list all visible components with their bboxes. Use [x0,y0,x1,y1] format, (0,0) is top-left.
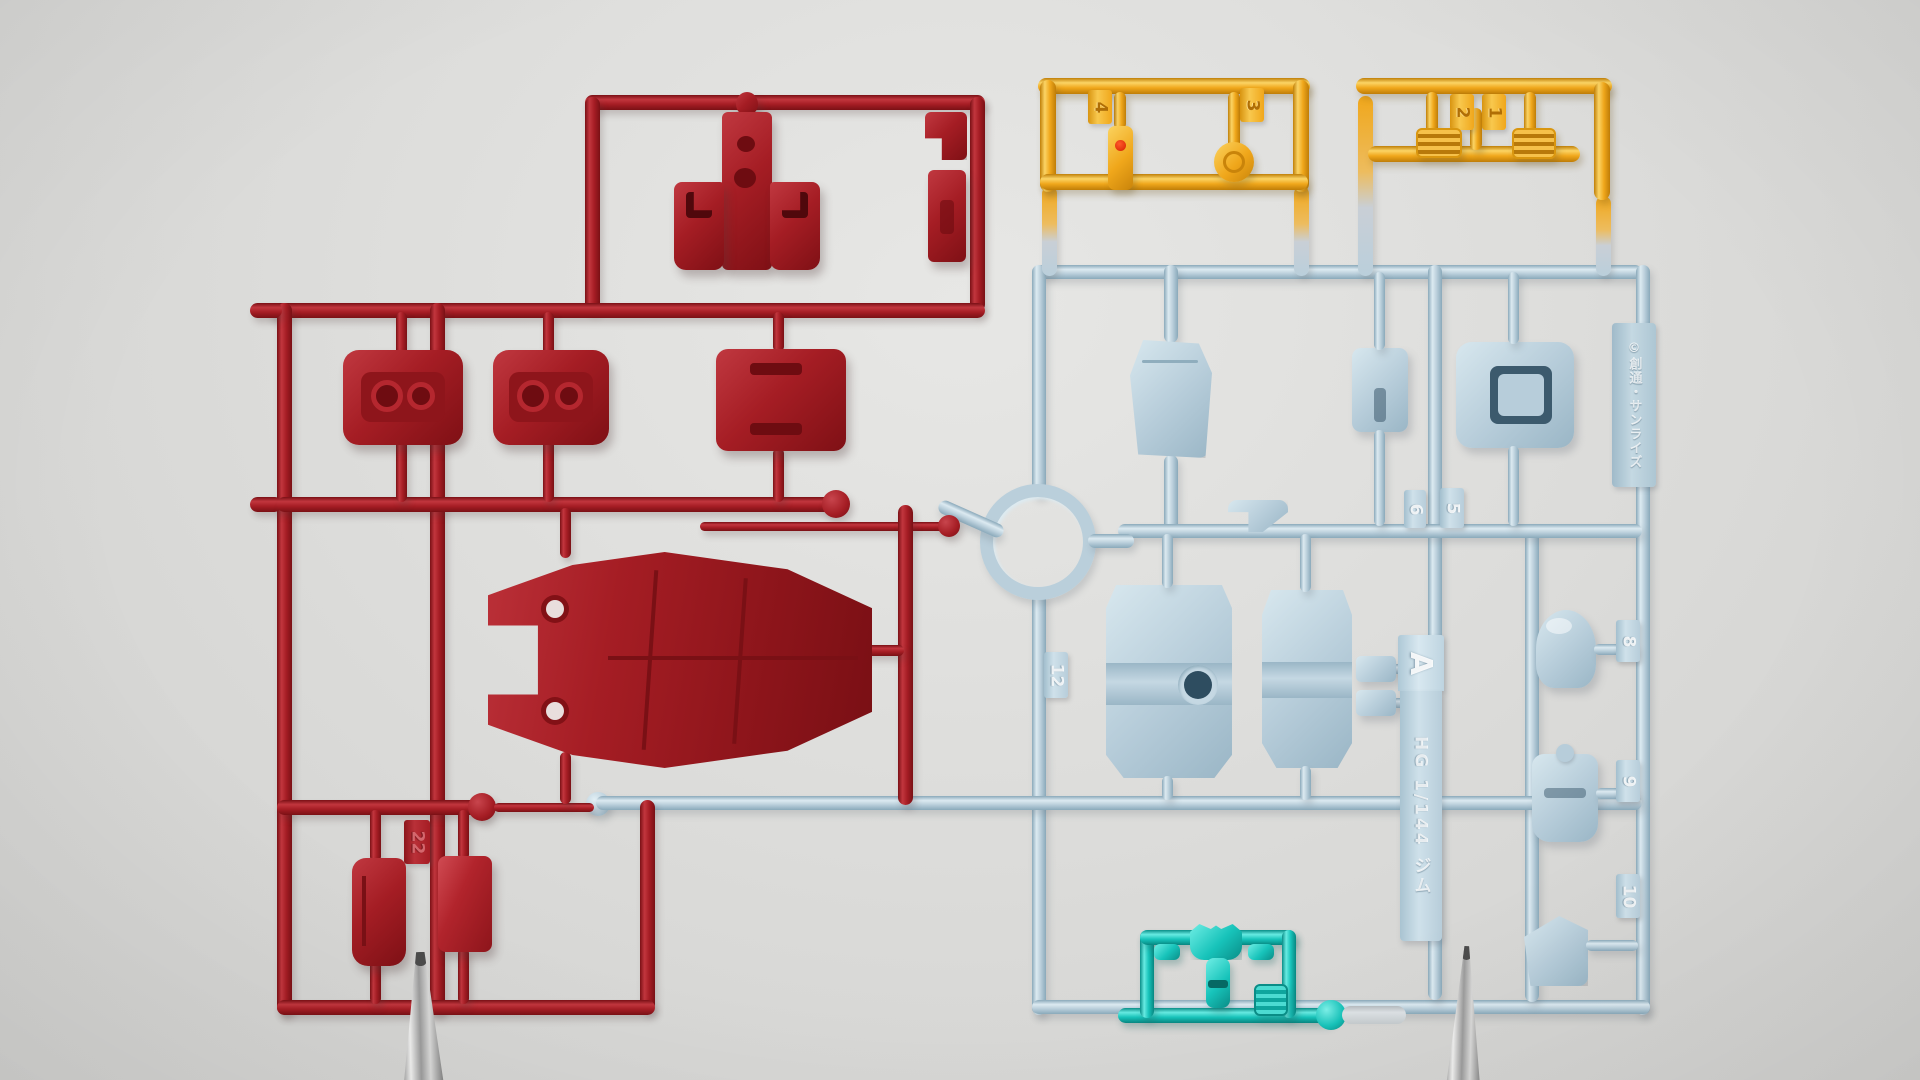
gate-stub [1162,534,1173,588]
gate-stub [1162,776,1173,800]
gate-number: 10 [1619,884,1636,908]
blue-runner-left-upper [1032,265,1046,497]
yellow-chest-vent-part-2 [1512,128,1556,159]
red-runner-bottom-mid [277,800,489,815]
gate-number: 9 [1620,775,1637,787]
red-foot-sole-part-2 [493,350,609,445]
blue-helmet-rear-part [1532,754,1598,842]
gate-stub [1114,92,1126,130]
light-hole [546,702,564,720]
blue-backpack-shell-part [1456,342,1574,448]
yellow2-top-bar [1356,78,1612,94]
kit-name-text: HG 1/144 ジム [1409,736,1434,897]
gate-stub [560,752,571,804]
thruster-red-dot [1115,140,1126,151]
backpack-wing-right [770,182,820,270]
part-rim [1498,374,1544,416]
gate-stub [1374,272,1385,350]
gate-tag-2: 2 [1450,94,1474,130]
red-cover-part-2 [438,856,492,952]
red-runner-left [277,303,292,1015]
bracket-slot [940,200,954,234]
kit-name-plate: HG 1/144 ジム [1400,691,1442,941]
transition-post-2 [1294,186,1309,276]
gate-stub [458,810,469,860]
gate-tag-10: 10 [1616,874,1640,918]
red-waist-block-part [716,349,846,451]
blue-shin-armor-part [1130,340,1212,458]
gate-stub [1508,272,1519,344]
part-knob [1556,744,1574,762]
yellow2-right-bar [1594,82,1610,200]
backpack-column [722,112,772,270]
red-topframe-right [970,97,985,312]
gate-stub [560,508,571,558]
transition-post-3 [1358,96,1373,276]
panel-line [362,876,366,946]
transition-post-4 [1596,196,1611,276]
copyright-text: ©創通・サンライズ [1625,341,1644,469]
dome-highlight [1546,618,1572,634]
panel-line [1142,360,1198,363]
teal-cylinder-part [1206,958,1230,1008]
gate-number: 2 [1454,106,1471,118]
red-runner-node-2 [938,515,960,537]
red-left-cap [250,303,282,318]
gate-tag-3: 3 [1240,88,1264,122]
sole-boss [555,382,583,410]
blue-chest-armor-part [1106,585,1232,778]
gate-stub [1586,940,1638,951]
blue-runner-long-horizontal [596,796,1642,810]
teal-clip [1248,944,1274,960]
gate-tag-1: 1 [1482,94,1506,130]
chest-mid-band-2 [1262,662,1352,698]
backpack-hole [737,136,755,152]
blue-ring-junction [980,484,1096,600]
panel-line [608,656,858,660]
gate-stub [1300,766,1311,800]
gate-number: 5 [1444,502,1461,514]
runner-letter-plate: A [1398,635,1444,691]
blue-hook-part-2 [1356,690,1396,716]
blue-runner-top [1035,265,1642,279]
gate-number: 4 [1092,101,1109,113]
dome-inner-ring [1223,151,1245,173]
red-cover-part-1 [352,858,406,966]
gate-stub [458,948,469,1004]
runner-letter: A [1404,651,1439,674]
cylinder-band [1208,980,1228,988]
gate-stub [773,312,784,352]
gate-stub [396,440,407,502]
backpack-hole [734,168,756,188]
block-slot [750,363,802,375]
red-topframe-left [585,97,600,312]
yellow1-bottom-bar [1040,174,1308,190]
red-foot-sole-part-1 [343,350,463,445]
sole-boss [407,382,435,410]
red-runner-node-3 [468,793,496,821]
gate-tag-6: 6 [1404,490,1426,528]
wing-cutout [782,192,808,218]
blue-helmet-dome-part [1536,610,1596,688]
model-kit-photo: 6 5 8 9 10 12 A HG 1/144 ジム ©創通・サンライズ 4 … [0,0,1920,1080]
red-topframe-top [585,95,985,110]
red-bracket-part-1 [925,112,967,160]
gate-stub [543,440,554,502]
blue-hook-part-1 [1356,656,1396,682]
gate-tag-22: 22 [404,820,430,864]
block-slot [750,423,802,435]
gate-tag-8: 8 [1616,620,1640,662]
clamp-tip [414,952,426,966]
gate-number: 8 [1620,635,1637,647]
blue-runner-mid-horizontal [1118,524,1642,538]
sole-boss [517,380,549,412]
visor-slot [1544,788,1586,798]
gate-stub [773,448,784,502]
sole-boss [371,380,403,412]
yellow-thruster-part [1108,126,1133,190]
yellow-chest-vent-part-1 [1416,128,1462,158]
wing-cutout [686,192,712,218]
gate-number: 1 [1486,106,1503,118]
gate-tag-12: 12 [1044,652,1068,698]
blue-chest-armor-part-2 [1262,590,1352,768]
gate-number: 22 [408,830,425,854]
gate-tag-4: 4 [1088,90,1112,124]
copyright-plate: ©創通・サンライズ [1612,323,1656,487]
blue-runner-inner-left-lower [1164,455,1178,533]
gate-stub [1508,446,1519,526]
yellow-dome-part [1214,142,1254,182]
yellow1-top-bar [1038,78,1310,94]
gate-tag-9: 9 [1616,760,1640,802]
panel-line [642,570,659,750]
part-slot [1374,388,1386,422]
blue-ankle-part [1352,348,1408,432]
red-runner-thin-link-2 [494,803,594,812]
teal-visor-part [1190,924,1242,960]
red-core-body-part [488,552,872,768]
transition-post-1 [1042,186,1057,276]
light-hole [546,600,564,618]
backpack-wing-left [674,182,724,270]
clamp-tip [1461,946,1471,960]
red-bracket-part-2 [928,170,966,262]
chest-scope-hole [1184,671,1212,699]
gate-number: 6 [1407,503,1424,515]
gate-stub [370,960,381,1004]
red-runner-top [268,303,985,318]
blue-runner-inner-left-upper [1164,265,1178,343]
gate-tag-5: 5 [1440,488,1464,528]
gate-stub [1300,534,1311,592]
blue-ring-right-link [1088,534,1134,548]
grey-runner-stub [1342,1006,1406,1024]
red-runner-node [822,490,850,518]
gate-stub [370,810,381,862]
gate-number: 12 [1047,663,1064,687]
red-runner-lower-right-vertical [640,800,655,1012]
gate-stub [1374,430,1385,526]
gate-number: 3 [1244,99,1261,111]
teal-gate-tag [1254,984,1288,1016]
teal-clip [1154,944,1180,960]
red-runner-mid [277,497,837,512]
panel-line [732,578,748,744]
